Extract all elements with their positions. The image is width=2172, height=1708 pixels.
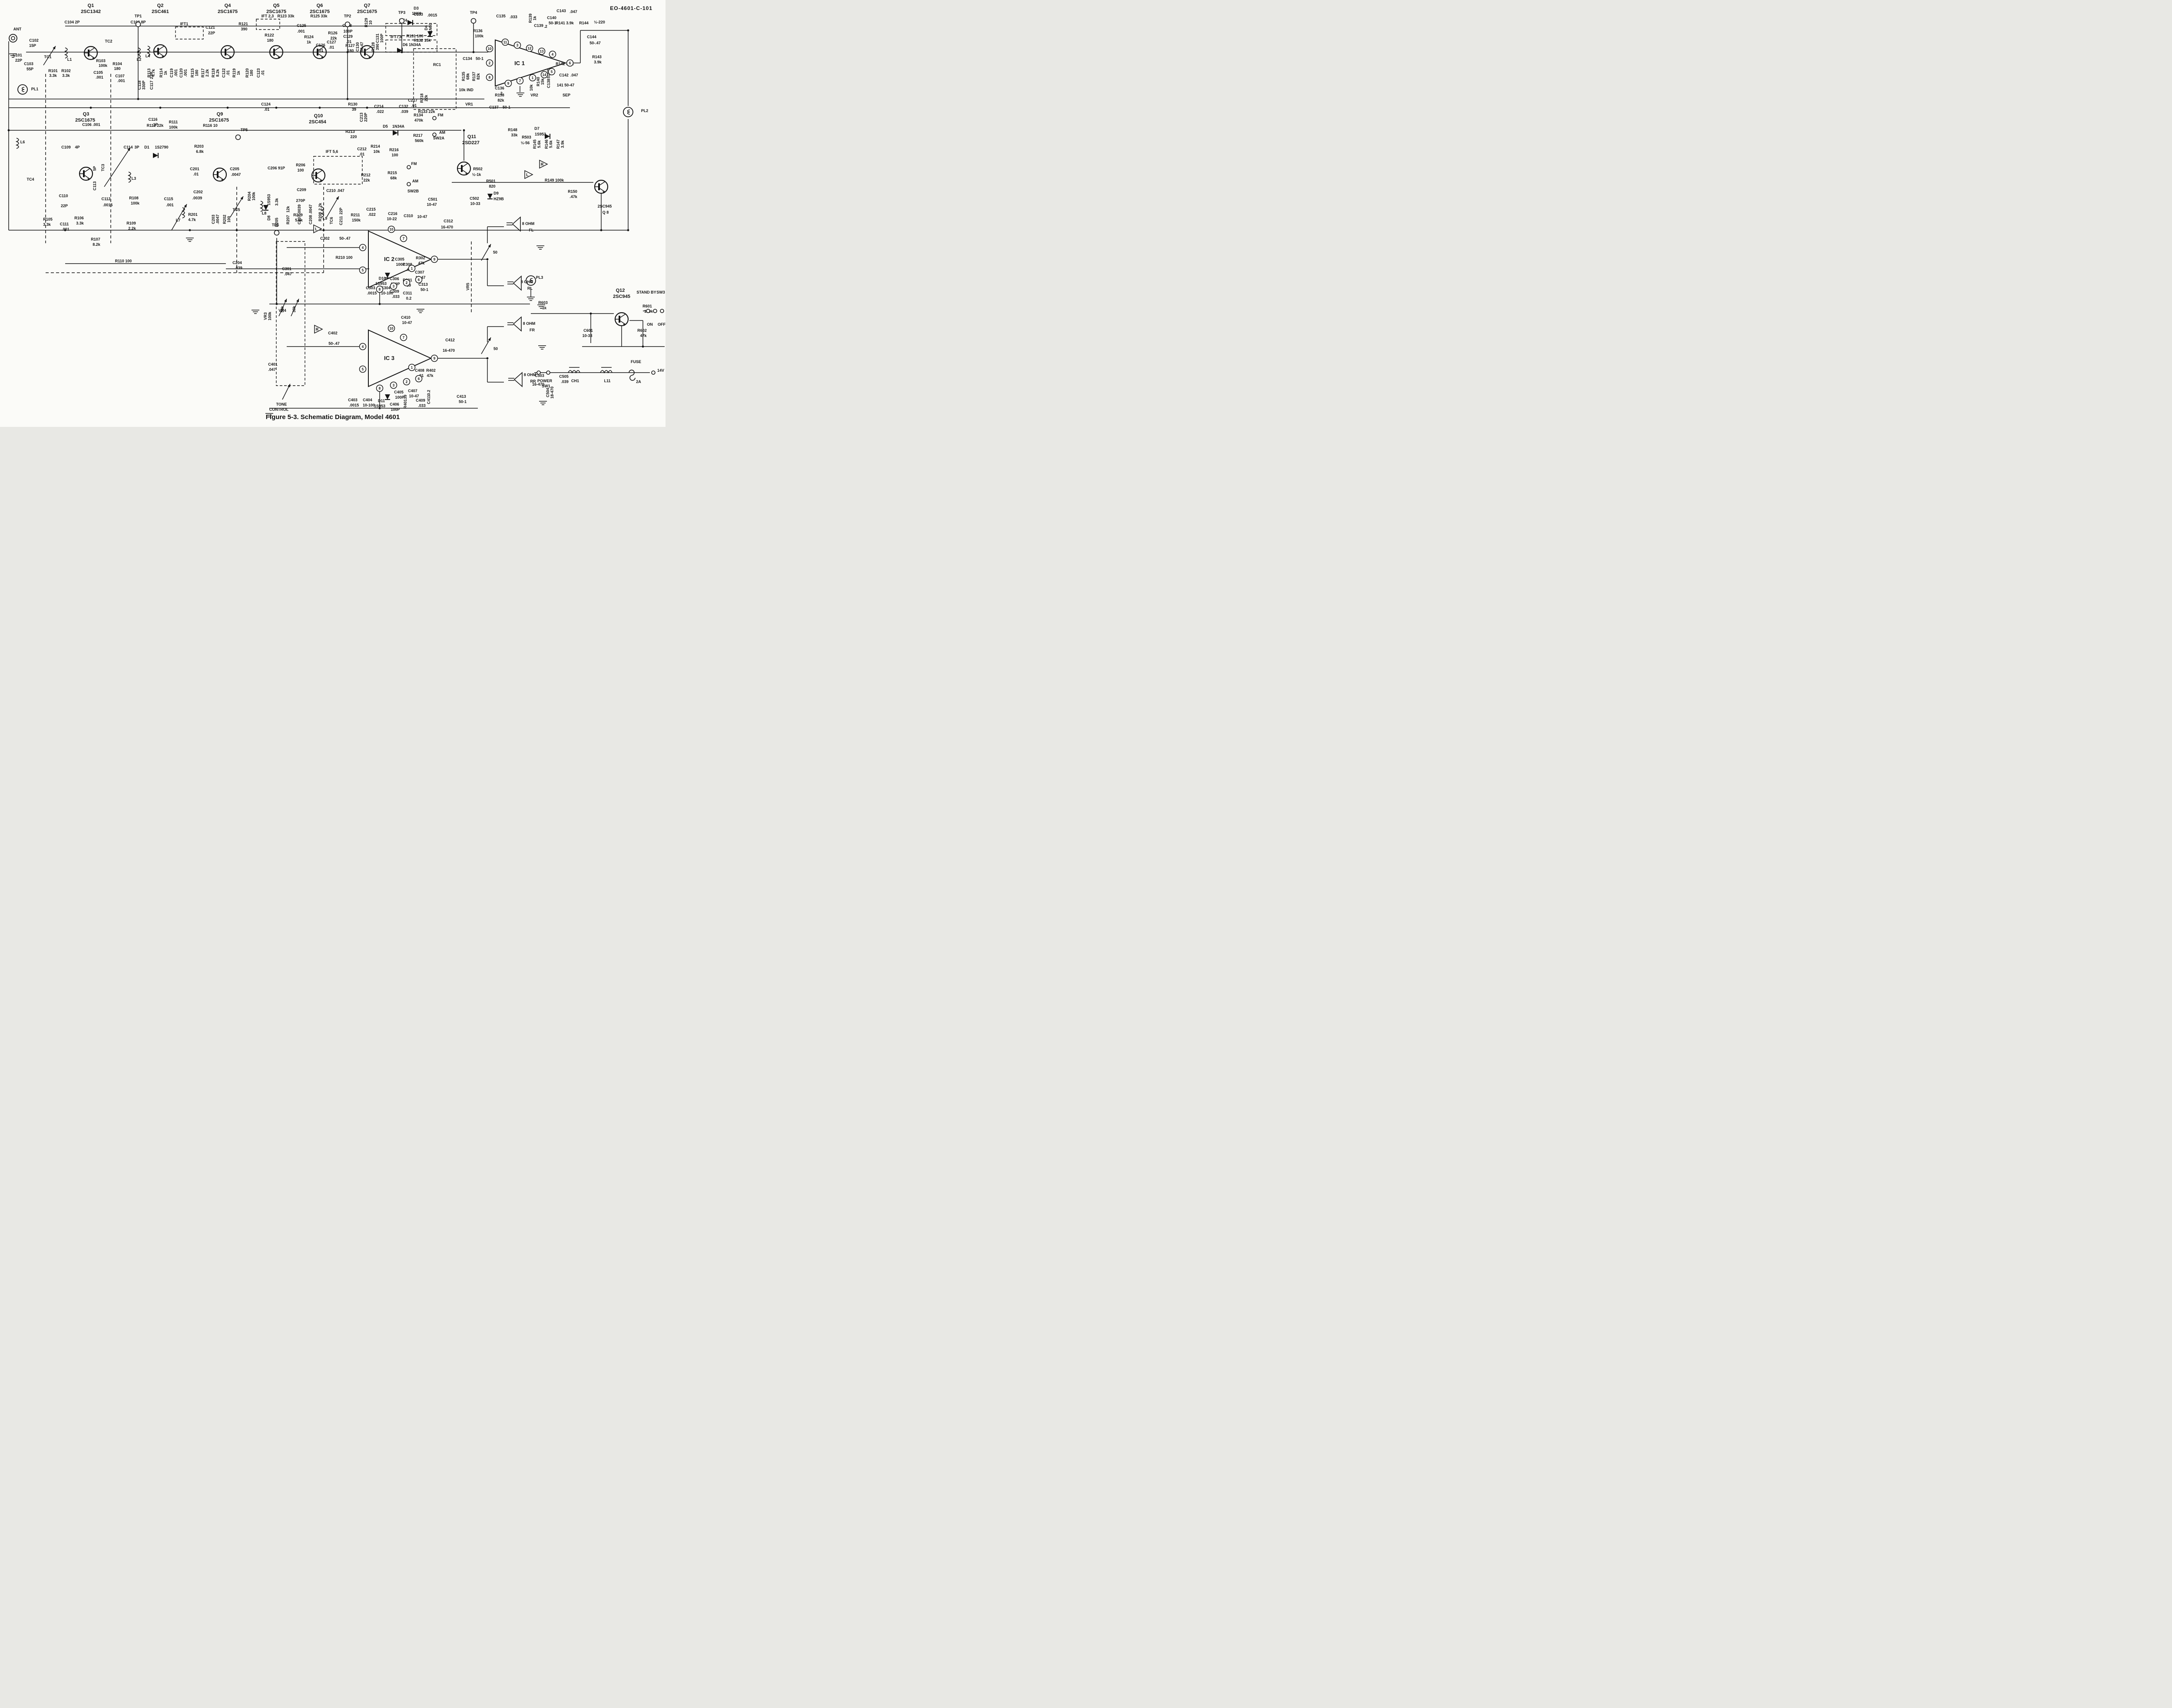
component-label: R145 xyxy=(533,139,537,149)
component-label: 14V xyxy=(657,368,664,373)
component-label: FM xyxy=(411,162,417,166)
component-label: PL3 xyxy=(536,275,543,280)
ift-dashed-box xyxy=(256,19,280,30)
component-label: C111 xyxy=(60,222,69,226)
component-label: .0047 xyxy=(231,172,241,177)
diode-icon xyxy=(153,153,158,158)
testpoint-label: TP4 xyxy=(470,10,477,15)
component-label: C209 xyxy=(297,188,306,192)
component-label: 22k xyxy=(424,95,428,102)
component-label: C405 xyxy=(394,390,404,394)
component-label: R120 xyxy=(245,68,249,78)
component-label: Q9 xyxy=(217,112,223,117)
component-label: C120 xyxy=(179,68,183,78)
component-label: IFT7,8 xyxy=(391,35,402,39)
component-label: 50-1 xyxy=(476,56,483,61)
component-label: 10-47 xyxy=(417,215,427,219)
component-label: R218 xyxy=(420,93,424,103)
component-label: D9 xyxy=(493,191,499,195)
component-label: 22k xyxy=(363,178,370,182)
component-label: FUSE xyxy=(631,360,641,364)
component-label: R139 xyxy=(528,13,533,23)
component-label: 220 xyxy=(350,135,357,139)
component-label: R501 xyxy=(486,179,496,183)
component-label: 50-.47 xyxy=(328,341,340,346)
ic-pin-number: 8 xyxy=(379,287,381,291)
component-label: C217 xyxy=(408,98,417,102)
component-label: 4.7k xyxy=(151,69,156,77)
component-label: POWER xyxy=(537,379,553,383)
junction-dot xyxy=(236,229,238,231)
switch-contact xyxy=(646,309,650,313)
component-label: C410 xyxy=(401,315,411,320)
ic-pin-number: 13 xyxy=(540,50,544,53)
component-label: C143 xyxy=(556,9,566,13)
component-label: C112 xyxy=(101,197,110,201)
component-label: R141 3.9k xyxy=(556,21,574,25)
transistor-q12 xyxy=(615,313,628,326)
component-label: 100P xyxy=(343,29,352,33)
component-label: R115 xyxy=(190,68,195,77)
junction-dot xyxy=(64,229,66,231)
component-label: 2SC1675 xyxy=(209,118,229,123)
component-label: Q5 xyxy=(273,3,280,8)
component-label: L11 xyxy=(604,379,610,383)
diode-icon xyxy=(487,194,493,199)
component-label: .001 xyxy=(117,79,125,83)
component-label: R150 xyxy=(568,189,577,194)
component-label: .022 xyxy=(376,109,384,114)
component-label: C104 2P xyxy=(64,20,79,24)
component-label: 2SC1675 xyxy=(357,9,377,14)
component-label: 180 xyxy=(249,69,254,76)
component-label: .0015 xyxy=(427,13,437,17)
component-label: 820 xyxy=(489,184,495,188)
junction-dot xyxy=(90,107,92,109)
component-label: C127 xyxy=(327,40,336,44)
component-label: 15P xyxy=(29,43,36,48)
component-label: C122 xyxy=(222,68,226,78)
channel-letter: L xyxy=(315,227,318,231)
component-label: R211 xyxy=(351,213,360,217)
component-label: R129 xyxy=(364,18,368,27)
component-label: .033 xyxy=(418,403,426,408)
junction-dot xyxy=(137,51,139,53)
component-label: L1 xyxy=(67,57,72,62)
component-label: R146 xyxy=(544,139,549,149)
component-label: .01 xyxy=(359,152,365,156)
junction-dot xyxy=(347,51,349,53)
component-label: ANT xyxy=(13,27,22,31)
ic-pin-number: 14 xyxy=(543,73,546,77)
component-label: R132 15k xyxy=(414,38,431,43)
component-label: .01 xyxy=(226,70,230,76)
component-label: 68k xyxy=(390,176,397,180)
lamp-filament xyxy=(22,87,24,92)
component-label: 390 xyxy=(241,27,247,31)
component-label: 560k xyxy=(415,139,424,143)
ift-dashed-box xyxy=(175,27,203,39)
component-label: 2SC461 xyxy=(152,9,169,14)
component-label: 1P xyxy=(153,122,158,127)
component-label: R202 xyxy=(222,215,227,224)
component-label: R212 xyxy=(361,173,371,177)
component-label: 18-470 xyxy=(550,387,554,399)
component-label: 3.3k xyxy=(43,222,51,227)
component-label: .001 xyxy=(96,75,103,79)
component-label: 5.6k xyxy=(537,140,541,148)
component-label: R216 xyxy=(389,148,399,152)
component-label: 10-47 xyxy=(427,202,437,207)
component-label: 50 xyxy=(493,250,497,254)
component-label: 1k xyxy=(307,40,311,44)
ic-pin-number: 10 xyxy=(488,47,492,51)
component-label: C138 xyxy=(546,79,551,88)
component-label: D4 xyxy=(424,25,428,30)
ic-pin-number: 9 xyxy=(507,82,510,86)
component-label: C504 xyxy=(546,388,550,397)
component-label: R210 100 xyxy=(335,255,352,260)
component-label: R147 xyxy=(556,139,560,149)
component-label: 100k xyxy=(268,311,272,320)
component-label: 1N60 xyxy=(428,23,433,33)
component-label: PL1 xyxy=(31,87,39,91)
component-label: R125 33k xyxy=(310,14,328,18)
adjust-arrow-head xyxy=(53,46,56,50)
component-label: 100 xyxy=(297,168,304,172)
component-label: .0015 xyxy=(367,291,377,295)
speaker-cap xyxy=(507,323,513,325)
junction-dot xyxy=(276,303,278,305)
switch-contact xyxy=(433,116,436,120)
junction-dot xyxy=(319,107,321,109)
component-label: D6 1N34A xyxy=(403,43,421,47)
component-label: 180 xyxy=(114,66,120,71)
component-label: R110 100 xyxy=(115,259,132,263)
component-label: R136 xyxy=(473,29,483,33)
junction-dot xyxy=(323,229,325,231)
component-label: 8 OHM xyxy=(522,221,535,226)
component-label: C311 xyxy=(403,291,412,295)
component-label: C302 xyxy=(320,236,330,241)
ic-pin-number: 9 xyxy=(434,357,436,360)
component-label: C129 xyxy=(343,34,353,39)
junction-dot xyxy=(627,30,629,32)
component-label: 1k xyxy=(533,16,537,20)
ic-pin-number: 5 xyxy=(551,70,553,74)
component-label: D7 xyxy=(534,126,540,131)
component-label: .01 xyxy=(411,103,417,108)
component-label: Q1 xyxy=(88,3,94,8)
component-label: 390 xyxy=(375,43,380,50)
component-label: R206 xyxy=(296,163,305,167)
component-label: C201 xyxy=(190,167,199,171)
component-label: 3.3k xyxy=(62,73,70,78)
component-label: 2SC945 xyxy=(598,204,612,208)
component-label: FR xyxy=(530,328,535,332)
component-label: ½-220 xyxy=(594,20,605,24)
component-label: 10 xyxy=(368,20,373,25)
component-label: C116 xyxy=(148,117,157,122)
testpoint-tp6 xyxy=(275,231,279,235)
component-label: R105 xyxy=(43,217,53,221)
coil-icon xyxy=(17,138,19,149)
speaker-icon xyxy=(513,317,521,331)
component-label: R135 xyxy=(461,72,466,81)
component-label: 2SD227 xyxy=(462,140,480,145)
component-label: D5 xyxy=(383,124,388,129)
component-label: .039 xyxy=(561,380,569,384)
component-label: 100k xyxy=(169,125,178,129)
ic-pin-number: 7 xyxy=(519,79,521,83)
component-label: 5P xyxy=(93,166,97,171)
component-label: 100 xyxy=(391,153,398,157)
component-label: 22P xyxy=(208,31,215,35)
component-label: VR2 xyxy=(530,93,538,97)
component-label: R104 xyxy=(113,62,122,66)
component-label: 1k xyxy=(236,70,241,75)
ic-pin-number: 6 xyxy=(569,61,571,65)
component-label: R137 xyxy=(472,72,476,81)
transistor-q1 xyxy=(84,46,97,60)
component-label: SW2B xyxy=(407,189,419,193)
component-label: 1S2790 xyxy=(155,145,168,149)
component-label: VR1 xyxy=(465,102,473,106)
component-label: C117 xyxy=(149,80,154,89)
component-label: 3.3k xyxy=(275,198,279,206)
adjust-arrow-head xyxy=(240,196,243,200)
component-label: 3P xyxy=(134,145,139,149)
component-label: C502 xyxy=(470,196,479,201)
component-label: .047 xyxy=(284,272,292,276)
component-label: .47k xyxy=(569,195,578,199)
component-label: R601 xyxy=(642,304,652,308)
testpoint-label: TP2 xyxy=(344,14,351,18)
component-label: 2SC945 xyxy=(613,294,630,299)
component-label: 100k xyxy=(252,192,256,201)
component-label: .047 xyxy=(570,73,578,77)
component-label: C204 xyxy=(232,261,242,265)
component-label: 100k xyxy=(475,34,484,38)
component-label: OFF xyxy=(658,322,666,327)
junction-dot xyxy=(275,107,278,109)
speaker-cap xyxy=(507,282,513,284)
component-label: 15k xyxy=(540,78,545,85)
antenna-jack-icon xyxy=(11,36,15,40)
ic-pin-number: 7 xyxy=(403,336,405,340)
component-label: C107 xyxy=(115,74,125,78)
component-label: C412 xyxy=(445,338,455,342)
component-label: 47k xyxy=(640,334,647,338)
component-label: STAND BY xyxy=(636,290,656,294)
component-label: D11 xyxy=(378,399,385,403)
switch-contact xyxy=(652,371,655,374)
component-label: PL2 xyxy=(641,109,649,113)
ic-pin-number: 5 xyxy=(362,367,364,371)
fuse-icon xyxy=(629,370,635,380)
junction-dot xyxy=(600,229,603,231)
component-label: 50-.47 xyxy=(339,236,351,241)
component-label: Q4 xyxy=(225,3,232,8)
junction-dot xyxy=(159,107,162,109)
junction-dot xyxy=(642,346,644,348)
component-label: C216 xyxy=(388,211,397,216)
component-label: R209 xyxy=(293,213,303,217)
ic-pin-number: 3 xyxy=(517,43,519,47)
component-label: C309 xyxy=(390,289,399,294)
component-label: .0039 xyxy=(192,196,202,200)
adjust-arrow xyxy=(327,196,339,217)
component-label: C140 xyxy=(547,16,556,20)
component-label: 270P xyxy=(296,198,305,203)
component-label: C403 xyxy=(348,398,358,402)
component-label: 33k xyxy=(511,133,518,137)
component-label: C103 xyxy=(24,62,33,66)
testpoint-label: TP5 xyxy=(241,128,248,132)
component-label: 47k xyxy=(427,373,434,378)
transistor-q2 xyxy=(154,45,167,58)
component-label: C132 xyxy=(399,104,408,109)
component-label: C119 xyxy=(169,68,174,77)
component-label: R603 xyxy=(538,301,548,305)
component-label: R215 xyxy=(387,171,397,175)
component-label: C409 xyxy=(416,398,425,403)
component-label: 10k xyxy=(529,84,533,91)
component-label: R114 xyxy=(159,68,163,77)
component-label: 0.2 xyxy=(406,296,412,301)
component-label: C213 xyxy=(359,112,364,122)
junction-dot xyxy=(590,313,592,315)
component-label: IFT 2,3 xyxy=(262,14,274,18)
component-label: IFT 5,6 xyxy=(326,149,338,154)
component-label: .033 xyxy=(392,294,400,299)
component-label: L8 xyxy=(262,211,267,215)
component-label: R122 xyxy=(265,33,274,37)
testpoint-tp1 xyxy=(136,22,141,27)
component-label: 2A xyxy=(636,380,641,384)
component-label: SEP xyxy=(563,93,570,97)
component-label: R103 xyxy=(96,59,106,63)
component-label: C310 xyxy=(404,214,413,218)
figure-caption: Figure 5-3. Schematic Diagram, Model 460… xyxy=(0,413,666,421)
speaker-icon xyxy=(514,373,522,387)
component-label: C136 xyxy=(495,86,504,90)
component-label: .001 xyxy=(166,203,174,207)
diode-icon xyxy=(385,394,390,400)
speaker-icon xyxy=(513,217,520,231)
speaker-cap xyxy=(508,378,514,380)
component-label: R113 xyxy=(147,68,151,77)
component-label: HZ9B xyxy=(493,197,504,201)
component-label: Q3 xyxy=(83,112,89,117)
component-label: 2SC1675 xyxy=(75,118,95,123)
component-label: FL xyxy=(529,228,534,232)
ic-pin-number: 4 xyxy=(362,345,364,349)
component-label: .039 xyxy=(401,109,408,114)
component-label: 55P xyxy=(26,67,33,71)
ic-pin-number: 5 xyxy=(362,268,364,272)
component-label: R402 xyxy=(426,368,436,373)
component-label: C210 .047 xyxy=(326,188,344,193)
component-label: C125 xyxy=(297,23,306,28)
component-label: .001 xyxy=(297,29,305,33)
component-label: C211 xyxy=(339,216,343,225)
component-label: .01 xyxy=(261,70,265,76)
component-label: C203 xyxy=(211,215,215,224)
ic-pin-number: 2 xyxy=(406,281,408,285)
component-label: 5.6k xyxy=(295,218,303,222)
ic-pin-number: 10 xyxy=(390,327,394,330)
ic-pin-number: 6 xyxy=(418,377,420,381)
ic-pin-number: 8 xyxy=(489,76,491,79)
testpoint-label: TP1 xyxy=(135,14,142,18)
component-label: 150k xyxy=(352,218,361,222)
component-label: C401 xyxy=(268,362,278,367)
component-label: 2.2k xyxy=(128,226,136,231)
component-label: R123 33k xyxy=(277,14,295,18)
ic-label: IC 1 xyxy=(514,60,525,66)
component-label: TONE xyxy=(276,402,287,406)
ic-pin-number: 1 xyxy=(411,267,413,271)
component-label: 10k xyxy=(373,149,380,154)
component-label: 10-22 xyxy=(387,217,397,221)
component-label: R127 xyxy=(345,43,355,48)
component-label: 50-1 xyxy=(459,400,467,404)
diode-icon xyxy=(407,20,413,25)
testpoint-label: TP6 xyxy=(272,223,279,227)
component-label: C406 xyxy=(390,402,399,406)
component-label: 0.2 xyxy=(427,390,431,396)
component-label: R130 xyxy=(348,102,358,106)
component-label: 1S953 xyxy=(535,132,546,136)
ic-pin-number: 3 xyxy=(393,284,395,288)
lamp-filament xyxy=(628,110,630,114)
component-label: 4.7k xyxy=(188,218,196,222)
component-label: R207 xyxy=(286,215,290,225)
coil-icon xyxy=(129,172,131,182)
component-label: C121 xyxy=(205,25,215,30)
component-label: 16-470 xyxy=(443,348,455,353)
junction-dot xyxy=(487,357,489,360)
junction-dot xyxy=(137,98,139,100)
component-label: 82k xyxy=(497,98,504,102)
component-label: C305 xyxy=(395,257,404,261)
component-label: C102 xyxy=(29,38,39,43)
component-label: L3 xyxy=(132,176,136,181)
diode-icon xyxy=(263,205,268,210)
switch-contact xyxy=(653,309,657,313)
switch-contact xyxy=(537,371,540,374)
ic-pin-number: 11 xyxy=(503,40,507,44)
component-label: C114 xyxy=(123,145,132,149)
component-label: .0047 xyxy=(308,205,313,215)
switch-contact xyxy=(407,182,411,186)
coil-icon xyxy=(261,201,263,211)
component-label: 10-100 xyxy=(363,403,375,407)
component-label: VR5 xyxy=(466,283,470,291)
component-label: .033 xyxy=(510,15,517,19)
switch-contact xyxy=(433,133,436,136)
junction-dot xyxy=(627,229,629,231)
ic-pin-number: 3 xyxy=(393,383,395,387)
ic-pin-number: 4 xyxy=(552,53,554,56)
component-label: .01 xyxy=(329,45,334,50)
diode-icon xyxy=(427,31,433,36)
junction-dot xyxy=(347,98,349,100)
component-label: .039 xyxy=(235,266,242,270)
component-label: R126 xyxy=(328,31,338,35)
component-label: C113 xyxy=(93,181,97,190)
